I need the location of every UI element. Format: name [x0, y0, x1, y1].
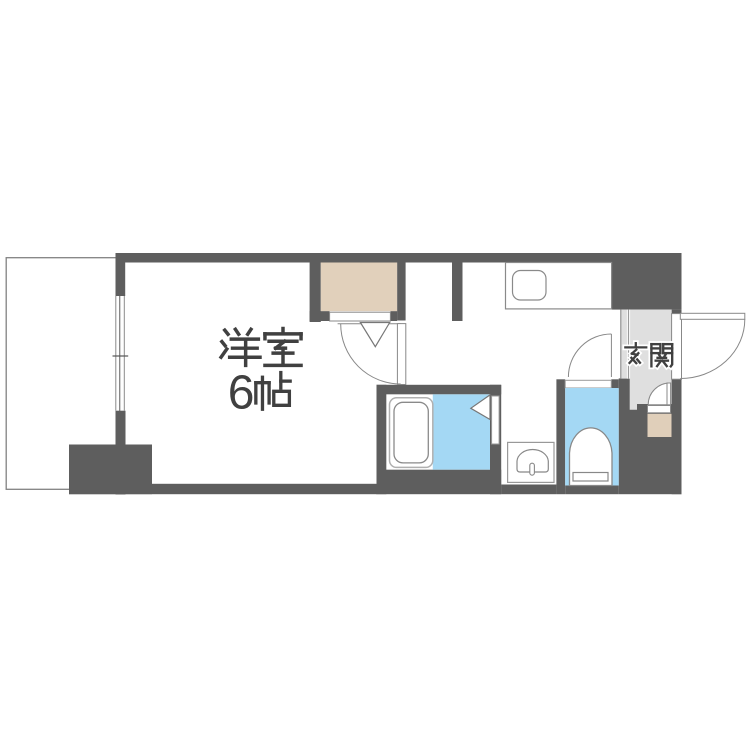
svg-text:6: 6 [228, 367, 255, 420]
